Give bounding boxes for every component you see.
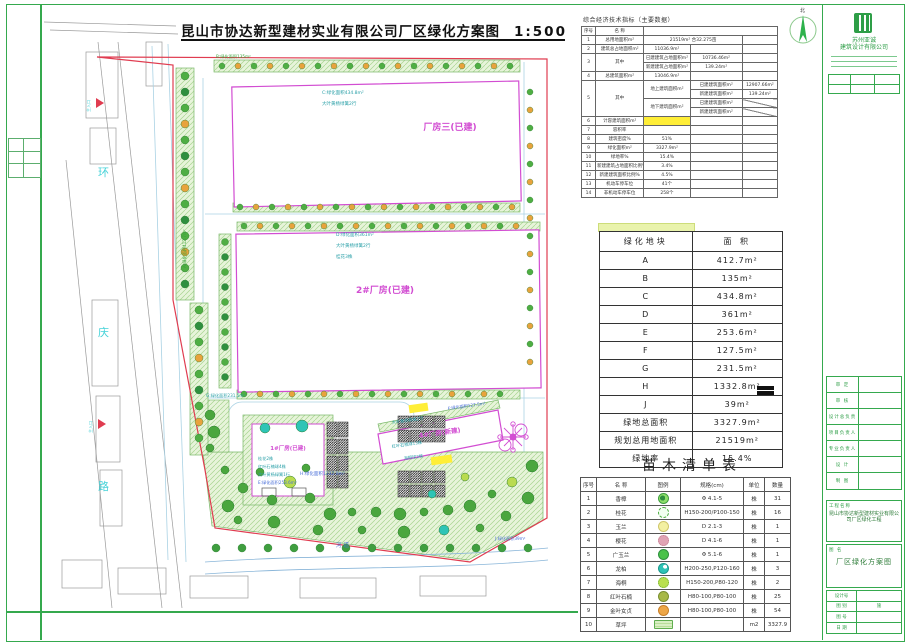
- cell: m2: [744, 618, 765, 632]
- cell: 规划总用地面积: [600, 432, 693, 450]
- cell: 海桐: [597, 576, 646, 590]
- cell: 16: [765, 506, 791, 520]
- lawn-icon: [654, 620, 673, 629]
- cell: [681, 618, 744, 632]
- indicators-table: 序号名 称 1总用地面积m²21519m² 合32.275亩 2建筑总占地面积m…: [581, 26, 778, 198]
- photinia-icon: [658, 591, 669, 602]
- cell: 1: [765, 520, 791, 534]
- company-address-lines: [831, 56, 897, 71]
- cell: 株: [744, 534, 765, 548]
- cell: D 4.1-6: [681, 534, 744, 548]
- cherry-icon: [658, 535, 669, 546]
- cell: 3327.9m²: [692, 414, 783, 432]
- drawing-title: 昆山市协达新型建材实业有限公司厂区绿化方案图1:500: [181, 20, 565, 41]
- osmanthus-icon: [658, 507, 669, 518]
- cell: 31: [765, 492, 791, 506]
- company-name: 苏州亚诚 建筑设计有限公司: [825, 37, 903, 51]
- indicators-title: 综合经济技术指标（主要数据）: [583, 15, 781, 24]
- plant-row: 4樱花D 4.1-6株1: [581, 534, 791, 548]
- sheet-info-row: 设计号: [827, 591, 901, 602]
- cell: 桂花: [597, 506, 646, 520]
- building-1-block: [243, 415, 333, 505]
- juniper-icon: [658, 563, 669, 574]
- indicators-panel: 综合经济技术指标（主要数据） 序号名 称 1总用地面积m²21519m² 合32…: [581, 15, 781, 198]
- seal-stamp: [757, 386, 774, 397]
- cell: 127.5m²: [692, 342, 783, 360]
- plant-row: 7海桐H150-200,P80-120株2: [581, 576, 791, 590]
- label-e3: 大叶黄杨绿篱1行: [258, 471, 290, 478]
- cell: 2: [765, 576, 791, 590]
- plant-row: 8红叶石楠H80-100,P80-100株25: [581, 590, 791, 604]
- cell: 株: [744, 548, 765, 562]
- cell: 253.6m²: [692, 324, 783, 342]
- company-logo-icon: [854, 13, 872, 33]
- certificate-grid: [828, 74, 900, 94]
- cell: 株: [744, 492, 765, 506]
- cell: H150-200,P80-120: [681, 576, 744, 590]
- project-name-block: 工程名称 昆山市协达新型建材实业有限公司厂区绿化工程: [826, 500, 902, 542]
- cell: Φ 5.1-6: [681, 548, 744, 562]
- green-area-row: 规划总用地面积21519m²: [600, 432, 783, 450]
- cell: 4: [581, 534, 597, 548]
- cell: D: [600, 306, 693, 324]
- cell: 广玉兰: [597, 548, 646, 562]
- label-e1: 桂花2株: [258, 455, 274, 462]
- cell: 3: [765, 562, 791, 576]
- legend-cell: [646, 562, 681, 576]
- plant-row: 10草坪m23327.9: [581, 618, 791, 632]
- signature-row: 专业负责人: [827, 441, 901, 457]
- cell: H: [600, 378, 693, 396]
- cell: 135m²: [692, 270, 783, 288]
- cell: 株: [744, 604, 765, 618]
- cell: 9: [581, 604, 597, 618]
- cell: 10: [581, 618, 597, 632]
- label-d2: 大叶黄杨绿篱2行: [336, 242, 371, 249]
- green-area-row: 绿地总面积3327.9m²: [600, 414, 783, 432]
- cell: Φ 4.1-5: [681, 492, 744, 506]
- cell: 株: [744, 562, 765, 576]
- north-arrow-icon: 北: [790, 7, 816, 43]
- legend-cell: [646, 618, 681, 632]
- legend-cell: [646, 520, 681, 534]
- cell: 25: [765, 590, 791, 604]
- cell: 3327.9: [765, 618, 791, 632]
- signature-row: 审 核: [827, 393, 901, 409]
- cell: G: [600, 360, 693, 378]
- cad-sheet: { "sheet": {"title": "昆山市协达新型建材实业有限公司厂区绿…: [0, 0, 910, 644]
- label-d3: 桂花3株: [336, 253, 353, 260]
- label-b: B:绿化面积135m²: [216, 53, 251, 60]
- title-scale: 1:500: [514, 24, 567, 40]
- pittosporum-icon: [658, 577, 669, 588]
- sheet-info-row: 日 期: [827, 623, 901, 634]
- plant-row: 5广玉兰Φ 5.1-6株1: [581, 548, 791, 562]
- green-area-row: F127.5m²: [600, 342, 783, 360]
- green-area-row: H1332.8m²: [600, 378, 783, 396]
- cell: 株: [744, 590, 765, 604]
- label-c2: 大叶黄杨绿篱2行: [322, 100, 357, 107]
- building-1-label: 1#厂房(已建): [270, 444, 306, 452]
- building-2-label: 2#厂房(已建): [356, 284, 414, 296]
- cell: H80-100,P80-100: [681, 604, 744, 618]
- cell: 玉兰: [597, 520, 646, 534]
- green-area-row: J39m²: [600, 396, 783, 414]
- plant-row: 3玉兰D 2.1-3株1: [581, 520, 791, 534]
- legend-cell: [646, 506, 681, 520]
- cell: 红叶石楠: [597, 590, 646, 604]
- green-area-row: D361m²: [600, 306, 783, 324]
- legend-cell: [646, 604, 681, 618]
- title-text: 昆山市协达新型建材实业有限公司厂区绿化方案图: [181, 24, 500, 40]
- green-areas-panel: 绿化地块 面 积 A412.7m²B135m²C434.8m²D361m²E25…: [599, 231, 783, 468]
- cell: F: [600, 342, 693, 360]
- road-char-1: 环: [98, 166, 109, 179]
- cell: 21519m²: [692, 432, 783, 450]
- green-area-row: C434.8m²: [600, 288, 783, 306]
- green-area-row: A412.7m²: [600, 252, 783, 270]
- cell: B: [600, 270, 693, 288]
- label-c1: C:绿化面积434.8m²: [322, 89, 364, 96]
- cell: 株: [744, 506, 765, 520]
- north-label: 北: [800, 7, 805, 14]
- cell: H200-250,P120-160: [681, 562, 744, 576]
- label-a: A:绿化面积412.7m²: [181, 229, 188, 268]
- signature-row: 项目负责人: [827, 425, 901, 441]
- label-g: G:绿化面积231.5m²: [206, 392, 245, 399]
- cell: C: [600, 288, 693, 306]
- cell: 草坪: [597, 618, 646, 632]
- cell: 231.5m²: [692, 360, 783, 378]
- signature-row: 制 图: [827, 473, 901, 489]
- label-h: H:绿化面积1332.8m²: [300, 470, 345, 477]
- label-e2: 红叶石楠球4株: [258, 463, 287, 470]
- green-areas-table: 绿化地块 面 积 A412.7m²B135m²C434.8m²D361m²E25…: [599, 231, 783, 468]
- cell: 412.7m²: [692, 252, 783, 270]
- cell: 8: [581, 590, 597, 604]
- cell: 1: [581, 492, 597, 506]
- cell: H80-100,P80-100: [681, 590, 744, 604]
- entrance-label-1: 主入口: [85, 100, 91, 112]
- cell: 龙柏: [597, 562, 646, 576]
- cell: 绿地总面积: [600, 414, 693, 432]
- sheet-info-row: 图 别施: [827, 602, 901, 613]
- cell: E: [600, 324, 693, 342]
- plant-list-table: 序号 名 称 图例 规格(cm) 单位 数量 1香樟Φ 4.1-5株312桂花H…: [580, 477, 791, 632]
- cell: 1: [765, 534, 791, 548]
- cell: 株: [744, 520, 765, 534]
- gwmagnolia-icon: [658, 549, 669, 560]
- cell: A: [600, 252, 693, 270]
- river-label: 河道: [336, 541, 351, 549]
- legend-cell: [646, 492, 681, 506]
- cell: 3: [581, 520, 597, 534]
- label-j: J:绿化面积39m²: [494, 535, 526, 542]
- road-char-2: 庆: [98, 325, 109, 339]
- cell: H150-200/P100-150: [681, 506, 744, 520]
- cell: 54: [765, 604, 791, 618]
- cell: 金叶女贞: [597, 604, 646, 618]
- cell: 株: [744, 576, 765, 590]
- green-area-row: E253.6m²: [600, 324, 783, 342]
- cell: 2: [581, 506, 597, 520]
- green-area-row: B135m²: [600, 270, 783, 288]
- label-e4: E:绿化面积253.6m²: [258, 479, 297, 486]
- cell: J: [600, 396, 693, 414]
- cell: 香樟: [597, 492, 646, 506]
- sheet-info-row: 图 号: [827, 612, 901, 623]
- sheet-info-table: 设计号图 别施图 号日 期: [826, 590, 902, 634]
- plant-list-panel: 序号 名 称 图例 规格(cm) 单位 数量 1香樟Φ 4.1-5株312桂花H…: [580, 477, 791, 632]
- legend-cell: [646, 590, 681, 604]
- plant-row: 1香樟Φ 4.1-5株31: [581, 492, 791, 506]
- signature-row: 设计总负责: [827, 409, 901, 425]
- plant-row: 2桂花H150-200/P100-150株16: [581, 506, 791, 520]
- signature-table: 审 定审 核设计总负责项目负责人专业负责人设 计制 图: [826, 376, 902, 490]
- drawing-name-block: 图 名 厂区绿化方案图: [826, 544, 902, 588]
- signature-row: 设 计: [827, 457, 901, 473]
- cell: 434.8m²: [692, 288, 783, 306]
- green-area-row: G231.5m²: [600, 360, 783, 378]
- entrance-label-2: 主入口: [87, 421, 93, 433]
- ligustrum-icon: [658, 605, 669, 616]
- cell: 6: [581, 562, 597, 576]
- plant-table-title: 苗木清单表: [612, 455, 772, 475]
- cell: 樱花: [597, 534, 646, 548]
- legend-cell: [646, 548, 681, 562]
- road-char-3: 路: [98, 480, 109, 493]
- river: [205, 548, 548, 574]
- signature-row: 审 定: [827, 377, 901, 393]
- plant-row: 9金叶女贞H80-100,P80-100株54: [581, 604, 791, 618]
- cell: D 2.1-3: [681, 520, 744, 534]
- cell: 1: [765, 548, 791, 562]
- cell: 39m²: [692, 396, 783, 414]
- cell: 7: [581, 576, 597, 590]
- building-3-label: 厂房三(已建): [423, 121, 476, 133]
- cell: 361m²: [692, 306, 783, 324]
- title-block: 苏州亚诚 建筑设计有限公司 审 定审 核设计总负责项目负责人专业负责人设 计制 …: [822, 4, 905, 640]
- legend-cell: [646, 534, 681, 548]
- magnolia-icon: [658, 521, 669, 532]
- entrance-marks: [96, 98, 106, 429]
- label-d1: D:绿化面积361m²: [336, 231, 374, 238]
- camphor-icon: [658, 493, 669, 504]
- cell: 5: [581, 548, 597, 562]
- plant-row: 6龙柏H200-250,P120-160株3: [581, 562, 791, 576]
- legend-cell: [646, 576, 681, 590]
